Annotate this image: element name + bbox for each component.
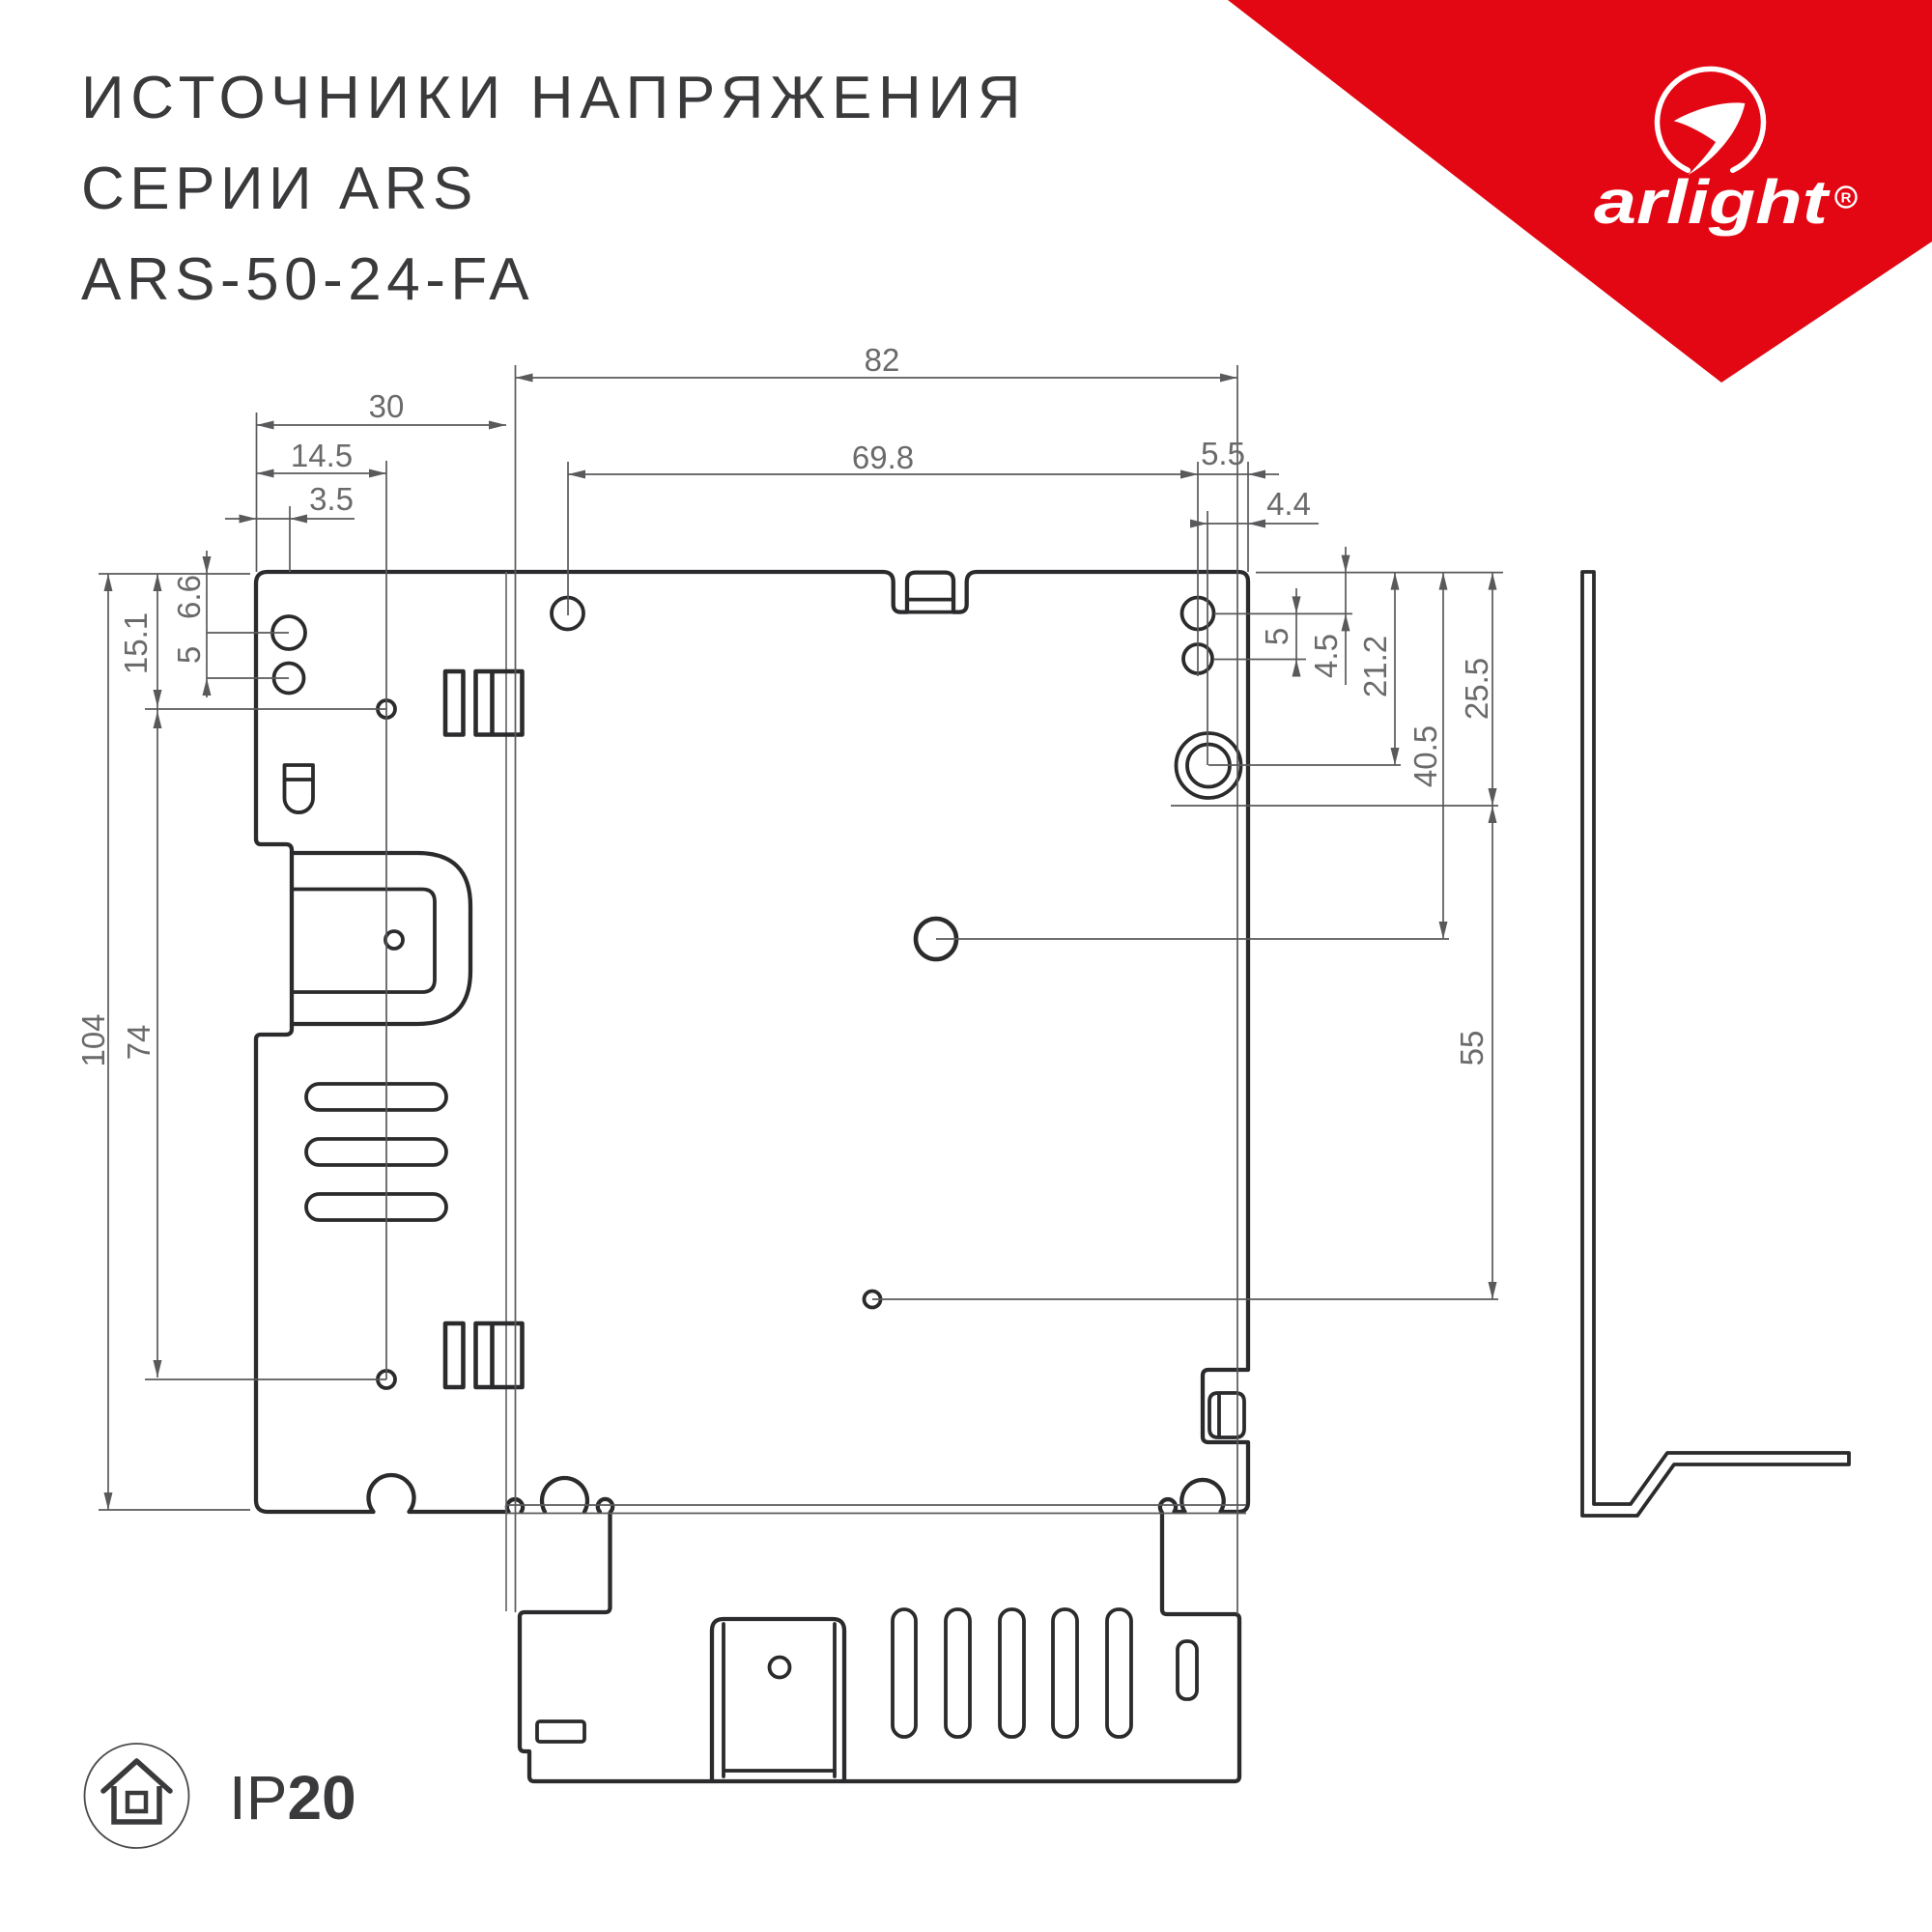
svg-text:82: 82 (865, 342, 900, 378)
svg-text:25.5: 25.5 (1459, 658, 1494, 720)
svg-text:ARS-50-24-FA: ARS-50-24-FA (81, 246, 534, 313)
svg-text:5.5: 5.5 (1201, 436, 1245, 471)
svg-text:69.8: 69.8 (852, 440, 914, 475)
svg-text:30: 30 (369, 388, 405, 424)
svg-text:R: R (1841, 190, 1852, 207)
svg-text:15.1: 15.1 (118, 612, 154, 674)
svg-text:74: 74 (121, 1025, 156, 1061)
svg-text:IP20: IP20 (229, 1763, 356, 1833)
svg-text:4.5: 4.5 (1308, 634, 1344, 678)
svg-text:21.2: 21.2 (1357, 636, 1393, 697)
svg-text:40.5: 40.5 (1407, 725, 1443, 787)
svg-text:14.5: 14.5 (291, 438, 353, 473)
svg-text:4.4: 4.4 (1266, 486, 1311, 522)
svg-text:СЕРИИ ARS: СЕРИИ ARS (81, 156, 478, 222)
svg-text:5: 5 (171, 646, 207, 664)
svg-text:ИСТОЧНИКИ НАПРЯЖЕНИЯ: ИСТОЧНИКИ НАПРЯЖЕНИЯ (81, 65, 1027, 131)
svg-text:55: 55 (1454, 1031, 1490, 1066)
svg-text:6.6: 6.6 (171, 575, 207, 619)
svg-text:5: 5 (1259, 628, 1294, 645)
svg-text:arlight: arlight (1594, 167, 1831, 237)
svg-text:104: 104 (75, 1013, 111, 1066)
svg-text:3.5: 3.5 (309, 481, 354, 517)
